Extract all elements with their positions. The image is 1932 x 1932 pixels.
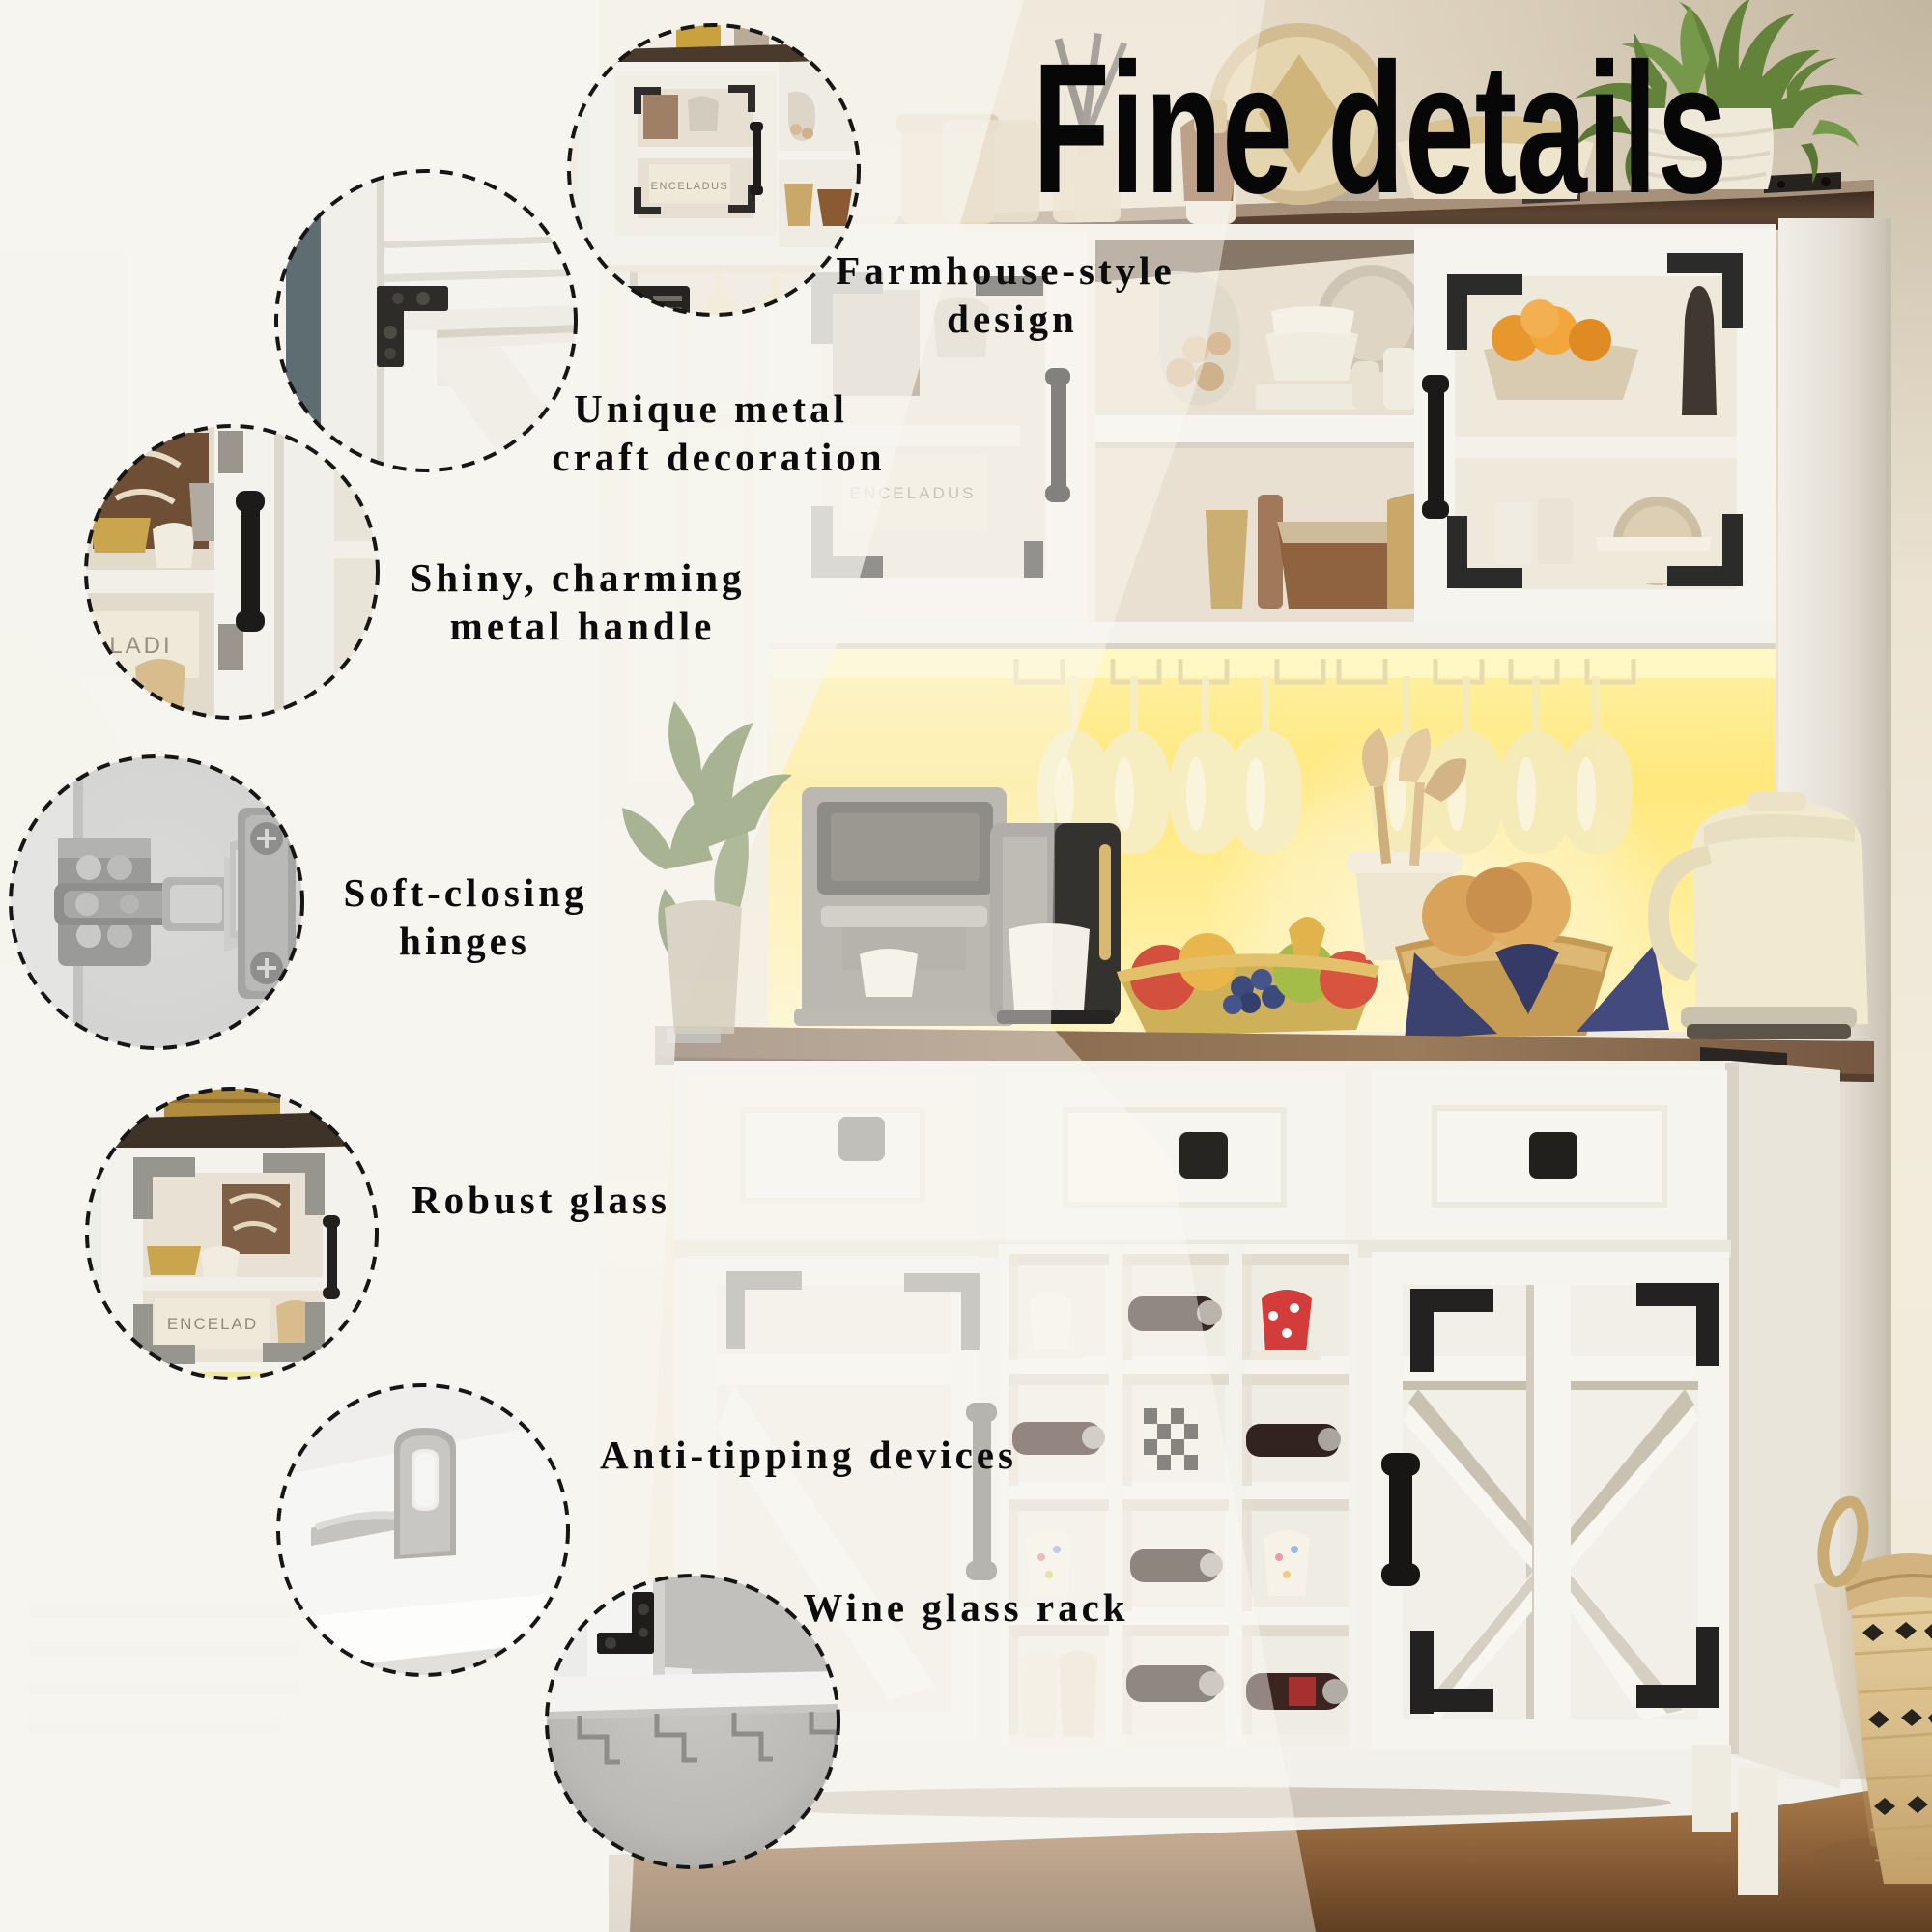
svg-text:craft decoration: craft decoration xyxy=(552,435,885,479)
svg-text:Fine details: Fine details xyxy=(1033,24,1727,232)
svg-text:metal handle: metal handle xyxy=(450,604,716,648)
svg-text:LADI: LADI xyxy=(109,633,172,659)
svg-text:Anti-tipping devices: Anti-tipping devices xyxy=(600,1433,1017,1477)
svg-text:ENCELADUS: ENCELADUS xyxy=(651,181,729,192)
svg-text:hinges: hinges xyxy=(399,919,530,963)
svg-text:design: design xyxy=(947,297,1078,341)
svg-text:Robust glass: Robust glass xyxy=(412,1178,670,1222)
svg-text:Unique metal: Unique metal xyxy=(574,386,848,431)
svg-text:Soft-closing: Soft-closing xyxy=(344,870,588,915)
svg-text:Shiny, charming: Shiny, charming xyxy=(410,555,745,600)
svg-text:Wine glass rack: Wine glass rack xyxy=(803,1585,1128,1630)
svg-text:Farmhouse-style: Farmhouse-style xyxy=(836,248,1176,293)
svg-text:ENCELAD: ENCELAD xyxy=(167,1315,258,1333)
